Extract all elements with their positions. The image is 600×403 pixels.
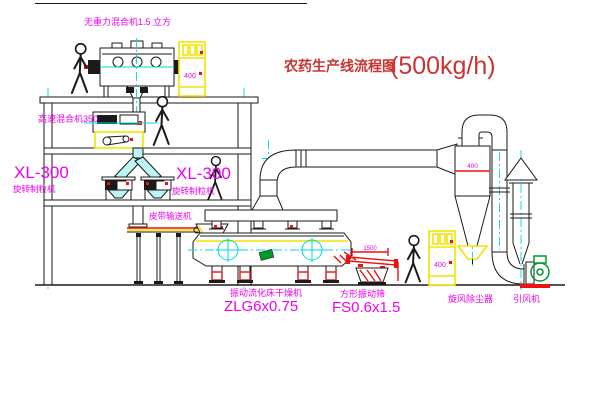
frame-floor-3 (44, 200, 251, 206)
granulator-left (102, 177, 135, 200)
discharge-chute (129, 206, 147, 227)
granulator-left-model-label: XL-300 (14, 163, 69, 182)
worker-figure (154, 97, 169, 145)
belt-conveyor-label: 皮带输送机 (149, 211, 192, 221)
fan-label: 引风机 (513, 293, 540, 304)
screen-model-label: FS0.6x1.5 (332, 299, 400, 316)
frame-top-platform (40, 97, 258, 103)
exhaust-duct (252, 140, 462, 214)
title-text: 农药生产线流程图 (283, 58, 396, 74)
gravity-free-mixer (84, 38, 190, 118)
cabinet-label: 400 (434, 262, 446, 269)
control-cabinet-top: 400 (179, 42, 205, 96)
drawing-canvas: 400 (0, 0, 600, 403)
granulator-right-model-label: XL-300 (176, 164, 231, 183)
granulator-right (141, 177, 174, 200)
control-cabinet-bottom: 400 (429, 231, 455, 285)
cad-flow-diagram: 400 (0, 0, 600, 403)
worker-figure (406, 236, 420, 283)
screen-dimension-label: 1500 (363, 246, 377, 252)
screen-name-label: 方形振动筛 (340, 288, 385, 299)
cabinet-label: 400 (184, 73, 196, 80)
dryer-legs (209, 266, 339, 283)
frame-floor-2 (44, 148, 251, 154)
title-capacity: (500kg/h) (390, 52, 496, 80)
high-speed-mixer-label: 高速混合机350 (38, 113, 98, 124)
belt-conveyor (127, 227, 200, 284)
drawing-title: 农药生产线流程图 (500kg/h) (283, 52, 496, 80)
gravity-mixer-label: 无重力混合机1.5 立方 (84, 16, 171, 27)
granulator-right-name-label: 旋转制粒机 (172, 186, 215, 196)
fluid-bed-dryer (188, 210, 354, 283)
dryer-model-label: ZLG6x0.75 (224, 298, 298, 315)
dryer-name-label: 振动流化床干燥机 (230, 287, 302, 298)
cyclone-size-label: 400 (467, 163, 478, 170)
granulator-left-name-label: 旋转制粒机 (13, 184, 56, 194)
cyclone-label: 旋风除尘器 (448, 293, 493, 304)
